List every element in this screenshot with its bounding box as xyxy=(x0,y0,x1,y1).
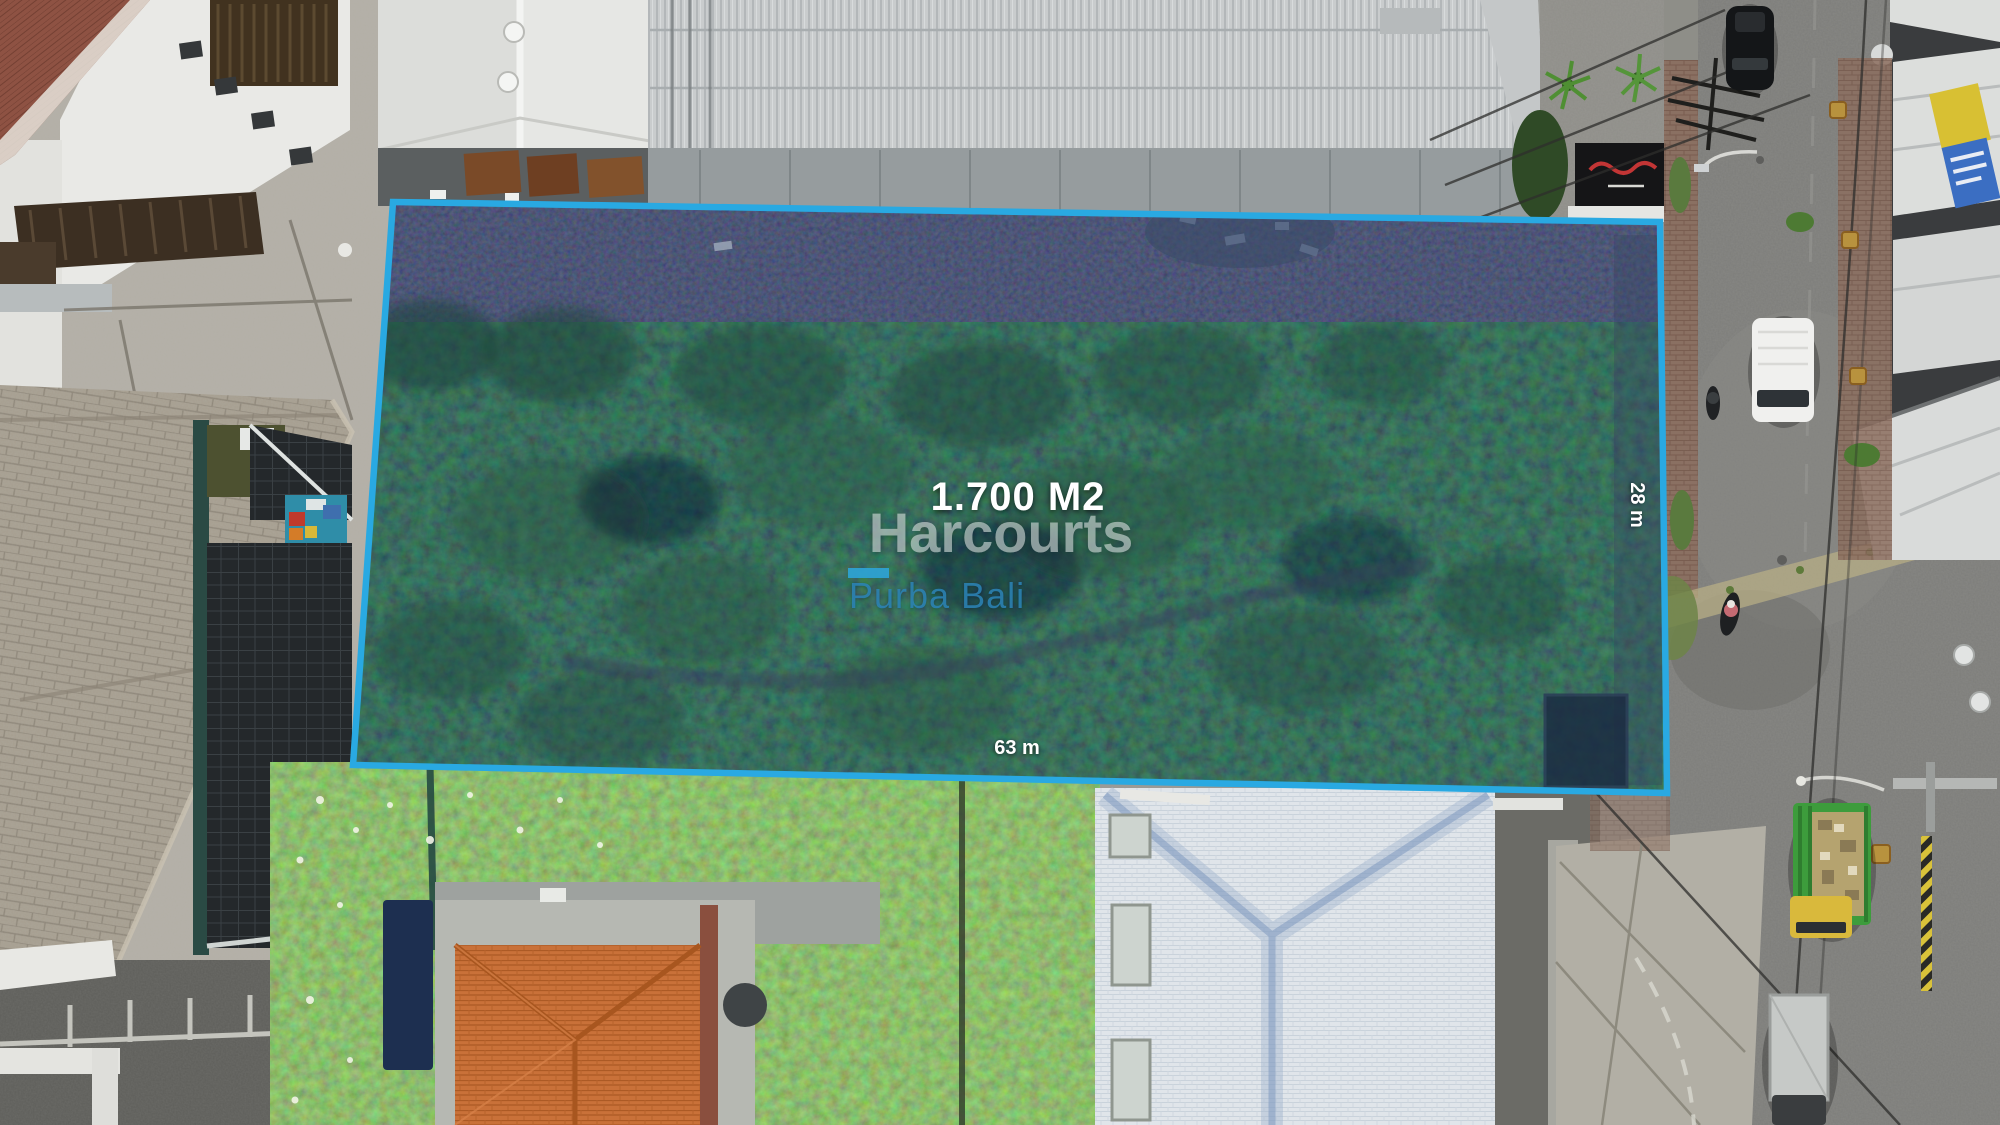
black-car xyxy=(1722,4,1778,96)
frontage-dimension-label: 63 m xyxy=(994,738,1040,758)
motorbike xyxy=(1706,386,1720,420)
aerial-land-listing-photo: 1.700 M2 Harcourts Purba Bali 63 m 28 m xyxy=(0,0,2000,1125)
brand-watermark: Harcourts xyxy=(869,505,1134,561)
corrugated-roof xyxy=(648,0,1548,215)
swimming-pool xyxy=(383,900,433,1070)
white-van xyxy=(1748,316,1820,428)
colored-deck xyxy=(285,495,347,543)
bottom-neighbourhood xyxy=(270,762,1600,1125)
hazard-curb xyxy=(1921,836,1932,991)
white-hip-roof xyxy=(378,0,678,152)
blue-white-roof xyxy=(1095,788,1495,1125)
depth-dimension-label: 28 m xyxy=(1627,482,1647,528)
brand-office-label: Purba Bali xyxy=(849,578,1025,614)
garbage-truck xyxy=(1788,798,1876,942)
top-roofs xyxy=(378,0,1668,224)
box-truck xyxy=(1762,995,1838,1125)
